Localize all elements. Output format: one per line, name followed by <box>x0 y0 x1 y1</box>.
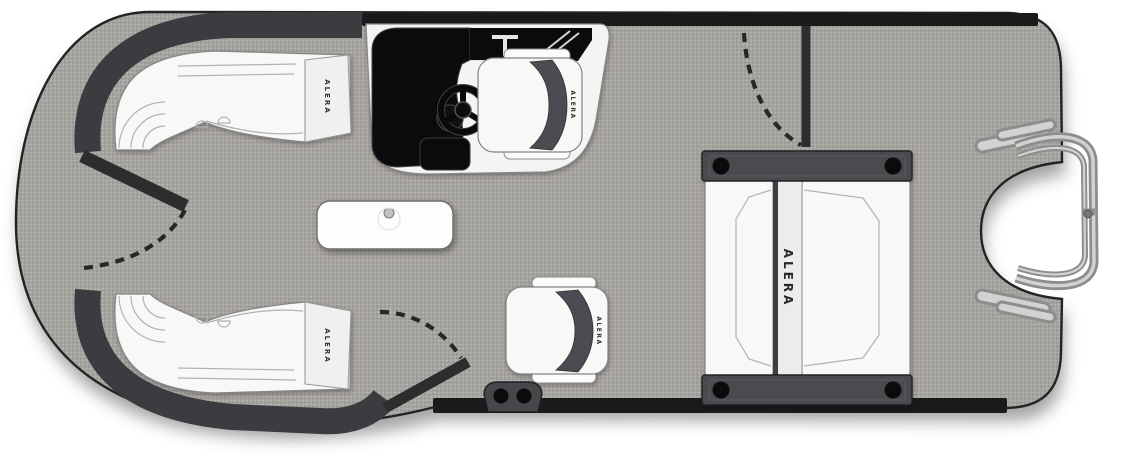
table <box>317 201 453 249</box>
aft-lounge-brand: ALERA <box>781 249 795 308</box>
helm-station: ALERA <box>366 24 609 174</box>
seat-pedestal-base <box>484 382 542 412</box>
cupholder <box>885 382 902 399</box>
helm-footrest <box>420 138 470 170</box>
bow-starboard-lounge-brand: ALERA <box>323 328 331 363</box>
cupholder <box>713 382 730 399</box>
companion-seat-brand: ALERA <box>595 316 602 345</box>
companion-seat: ALERA <box>506 277 608 383</box>
cupholder <box>713 158 730 175</box>
aft-lounge: ALERA <box>702 151 912 405</box>
cupholder <box>885 158 902 175</box>
helm-seat: ALERA <box>478 49 582 159</box>
pontoon-floor-plan: ALERA ALERA <box>0 0 1123 456</box>
bow-port-lounge-brand: ALERA <box>323 79 331 114</box>
table-pedestal <box>384 208 394 218</box>
helm-seat-brand: ALERA <box>569 90 576 119</box>
